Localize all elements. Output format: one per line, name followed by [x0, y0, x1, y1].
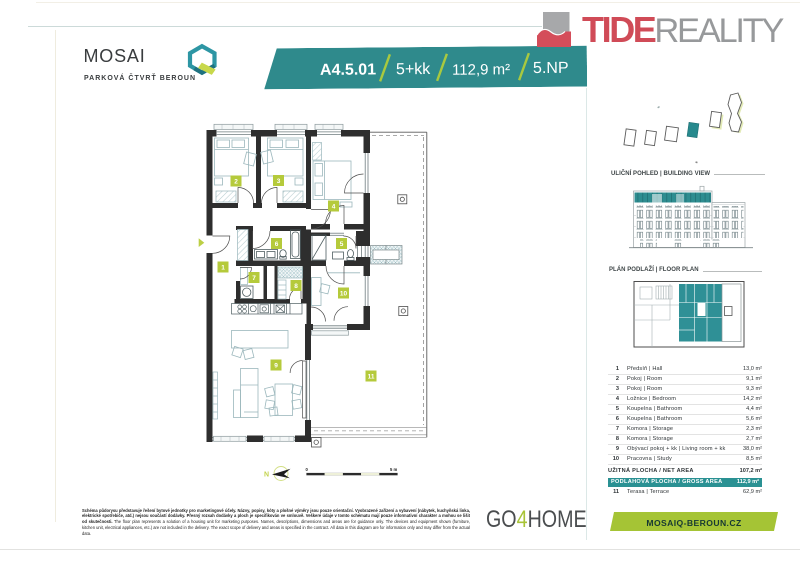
- svg-text:4: 4: [332, 204, 336, 211]
- svg-text:7: 7: [252, 275, 256, 282]
- svg-text:9: 9: [274, 363, 278, 370]
- svg-text:3: 3: [277, 178, 281, 185]
- svg-text:10: 10: [340, 291, 348, 298]
- svg-text:N: N: [264, 472, 269, 479]
- svg-text:1: 1: [221, 265, 225, 272]
- svg-text:8: 8: [294, 283, 298, 290]
- svg-text:5: 5: [340, 241, 344, 248]
- svg-text:11: 11: [368, 374, 375, 381]
- svg-text:6: 6: [275, 241, 279, 248]
- svg-text:2: 2: [234, 179, 238, 186]
- svg-text:0: 0: [306, 467, 309, 472]
- svg-text:5 m: 5 m: [390, 467, 397, 472]
